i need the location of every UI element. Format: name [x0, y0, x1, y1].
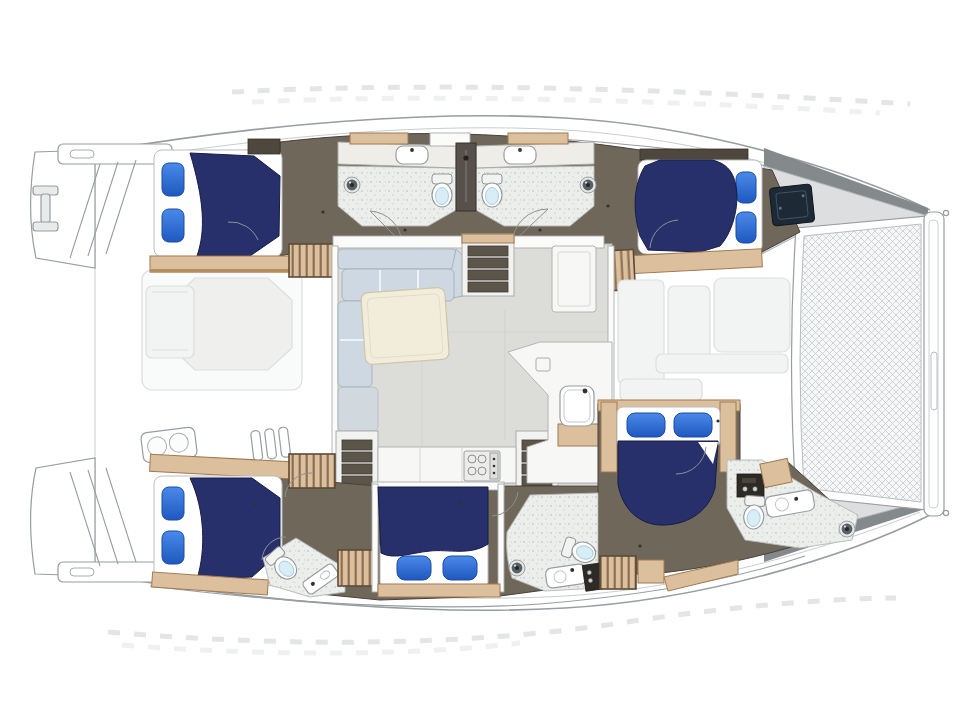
- cabin-side-wall: [498, 484, 504, 592]
- forward-hatch: [769, 184, 815, 226]
- bed-pillow: [443, 556, 477, 580]
- overhead-locker-right: [508, 133, 568, 144]
- cockpit-seat: [668, 286, 710, 358]
- bed-pillow: [162, 487, 184, 520]
- bow-trampoline: [800, 224, 921, 502]
- ceiling-light: [538, 228, 541, 231]
- settee-chaise: [338, 387, 378, 431]
- stair-tread: [468, 258, 508, 268]
- faucet: [518, 148, 522, 152]
- salon: [332, 234, 614, 499]
- stair-tread: [468, 270, 508, 280]
- beam-end-fitting-bottom: [943, 510, 948, 515]
- bed-pillow: [736, 212, 756, 243]
- bed-pillow: [674, 413, 712, 437]
- catamaran-deck-plan: [0, 0, 971, 728]
- louvered-locker: [338, 550, 375, 586]
- ceiling-light: [321, 210, 324, 213]
- bed-pillow: [736, 172, 756, 203]
- salon-table: [361, 287, 450, 365]
- faucet: [583, 389, 588, 394]
- shower-drain: [344, 177, 360, 193]
- salon-forward-wall-left: [333, 236, 464, 248]
- refrigerator: [552, 246, 596, 312]
- stair-landing: [462, 234, 514, 243]
- ceiling-light: [253, 503, 256, 506]
- bed-pillow: [162, 163, 184, 196]
- bed-pillow: [162, 209, 184, 242]
- deck-rib-panel: [250, 427, 290, 461]
- ceiling-light: [606, 204, 609, 207]
- floor-plan-canvas: [0, 0, 971, 728]
- louvered-locker: [289, 454, 335, 488]
- shower-head: [463, 155, 468, 160]
- stair-tread: [468, 282, 508, 292]
- cabin-side-wall: [372, 484, 378, 592]
- roof-dash-row-top-2: [252, 98, 880, 113]
- stair-tread: [342, 440, 372, 450]
- stove: [464, 451, 500, 481]
- ceiling-light: [716, 419, 719, 422]
- bed-pillow: [627, 413, 665, 437]
- stair-tread: [468, 246, 508, 256]
- transom-bottom: [31, 458, 95, 576]
- bed-pillow: [397, 556, 431, 580]
- stair-tread: [342, 464, 372, 474]
- salon-table-group: [361, 287, 450, 365]
- bed-rail: [601, 402, 617, 472]
- foot-shelf: [378, 584, 500, 597]
- cockpit-sunpad: [714, 278, 790, 352]
- cockpit-bench: [656, 354, 788, 373]
- louvered-locker: [600, 556, 636, 589]
- settee-back: [338, 249, 456, 269]
- ceiling-light: [458, 500, 461, 503]
- cabinet: [638, 560, 664, 583]
- bed-pillow: [162, 531, 184, 564]
- aft-deck-bench: [146, 286, 194, 358]
- headboard-shelf: [640, 149, 748, 160]
- vanity-dark: [737, 474, 764, 497]
- bed-duvet: [190, 153, 280, 256]
- beam-end-fitting-top: [943, 210, 948, 215]
- toilet: [432, 174, 452, 207]
- cabin-aft-top: [154, 139, 282, 257]
- shower-drain: [839, 521, 855, 537]
- stair-tread: [342, 452, 372, 462]
- bed-duvet: [378, 487, 488, 556]
- ceiling-light: [638, 544, 641, 547]
- cabin-middle-bottom: [372, 482, 504, 597]
- ceiling-light: [403, 228, 406, 231]
- cockpit-step: [620, 379, 702, 401]
- louvered-locker: [289, 244, 335, 277]
- shower-drain: [509, 560, 525, 576]
- toilet: [482, 174, 502, 207]
- shower-drain: [580, 177, 596, 193]
- wardrobe: [248, 139, 280, 154]
- faucet: [410, 148, 414, 152]
- stairs-top-hull: [462, 234, 514, 296]
- toilet: [743, 495, 765, 529]
- bow-crossbeam: [924, 212, 944, 516]
- overhead-locker-left: [350, 133, 408, 144]
- bed-duvet: [635, 160, 737, 252]
- shelf: [760, 458, 792, 487]
